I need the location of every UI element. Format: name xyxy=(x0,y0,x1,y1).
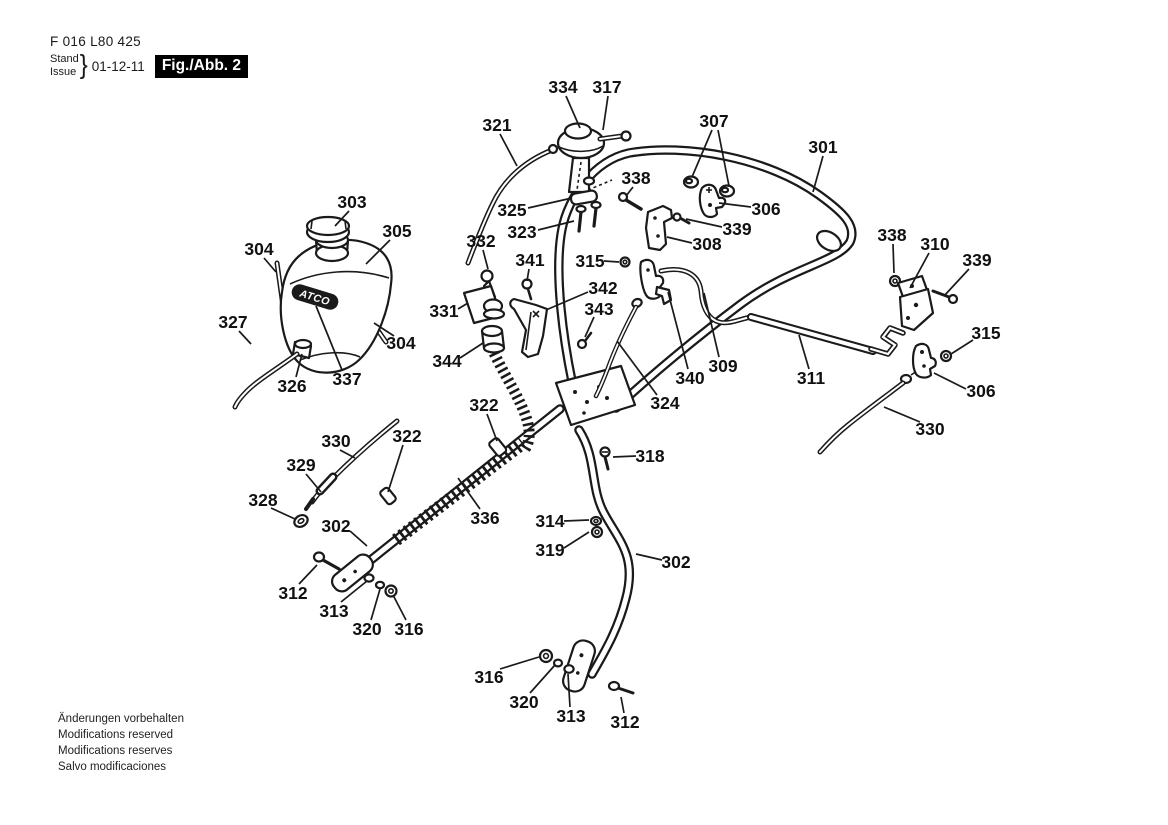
callout-307-3: 307 xyxy=(699,111,728,131)
callout-331-22: 331 xyxy=(429,301,458,321)
callout-319-44: 319 xyxy=(535,540,564,560)
parts-diagram: ATCO xyxy=(0,0,1168,825)
footer-line-fr: Modifications reserves xyxy=(58,744,184,760)
callout-315-15: 315 xyxy=(575,251,604,271)
callout-337-27: 337 xyxy=(332,369,361,389)
callout-312-46: 312 xyxy=(278,583,307,603)
callout-322-34: 322 xyxy=(469,395,498,415)
leader-line-312 xyxy=(621,697,624,713)
callout-330-36: 330 xyxy=(321,431,350,451)
callout-314-43: 314 xyxy=(535,511,564,531)
leader-line-344 xyxy=(460,343,483,358)
leader-line-331 xyxy=(458,303,468,309)
leader-line-315 xyxy=(604,261,619,262)
callout-311-31: 311 xyxy=(797,368,825,388)
callout-306-10: 306 xyxy=(751,199,780,219)
callout-313-52: 313 xyxy=(556,706,585,726)
callout-339-11: 339 xyxy=(722,219,751,239)
callout-328-40: 328 xyxy=(248,490,277,510)
screw-343 xyxy=(578,333,591,348)
callout-339-19: 339 xyxy=(962,250,991,270)
bell-lever-317 xyxy=(600,132,631,141)
leader-line-332 xyxy=(483,250,488,269)
footer-line-es: Salvo modificaciones xyxy=(58,760,184,776)
bolts-323 xyxy=(577,202,601,231)
callout-304-20: 304 xyxy=(244,239,273,259)
leader-line-330 xyxy=(340,450,355,458)
callout-338-5: 338 xyxy=(621,168,650,188)
callout-325-6: 325 xyxy=(497,200,526,220)
leader-line-302 xyxy=(636,554,662,560)
callout-330-35: 330 xyxy=(915,419,944,439)
callout-302-45: 302 xyxy=(661,552,690,572)
leader-line-329 xyxy=(306,474,321,492)
screw-338-left xyxy=(619,193,641,209)
callout-302-42: 302 xyxy=(321,516,350,536)
callout-340-29: 340 xyxy=(675,368,704,388)
sleeve-344 xyxy=(482,326,504,353)
callout-323-7: 323 xyxy=(507,222,536,242)
leader-line-317 xyxy=(603,96,608,130)
cable-clip-328 xyxy=(292,513,310,530)
callout-320-48: 320 xyxy=(352,619,381,639)
screw-312-bottom xyxy=(609,682,633,693)
callout-341-14: 341 xyxy=(515,250,544,270)
screw-318 xyxy=(601,448,610,470)
callout-326-26: 326 xyxy=(277,376,306,396)
leader-line-338 xyxy=(626,187,633,196)
callout-317-1: 317 xyxy=(592,77,621,97)
cable-330-right xyxy=(820,371,917,452)
washer-313-left xyxy=(365,574,374,581)
leader-line-311 xyxy=(799,335,809,369)
callout-322-37: 322 xyxy=(392,426,421,446)
control-rod-311 xyxy=(751,317,903,354)
nut-315-right xyxy=(941,351,951,361)
leader-line-318 xyxy=(613,456,636,457)
leader-line-301 xyxy=(813,156,823,192)
callout-301-4: 301 xyxy=(808,137,837,157)
footer-line-en: Modifications reserved xyxy=(58,728,184,744)
callout-316-50: 316 xyxy=(474,667,503,687)
callout-313-47: 313 xyxy=(319,601,348,621)
screw-339-left xyxy=(674,214,690,224)
callout-332-13: 332 xyxy=(466,231,495,251)
leader-line-315 xyxy=(951,340,973,354)
callout-316-49: 316 xyxy=(394,619,423,639)
leader-line-308 xyxy=(667,237,692,243)
callout-342-16: 342 xyxy=(588,278,617,298)
nut-319 xyxy=(592,527,602,537)
callout-344-24: 344 xyxy=(432,351,461,371)
leader-line-323 xyxy=(538,221,574,230)
leader-line-316 xyxy=(500,657,539,669)
callout-303-8: 303 xyxy=(337,192,366,212)
leader-line-338 xyxy=(893,244,894,273)
callout-324-33: 324 xyxy=(650,393,679,413)
leader-line-320 xyxy=(530,665,555,693)
right-bracket-cluster xyxy=(890,276,957,378)
bracket-342 xyxy=(510,299,547,357)
callout-304-25: 304 xyxy=(386,333,415,353)
leader-line-321 xyxy=(500,134,517,166)
leader-line-342 xyxy=(546,292,588,310)
callout-320-51: 320 xyxy=(509,692,538,712)
leader-line-339 xyxy=(944,269,969,296)
leader-line-327 xyxy=(239,331,251,344)
callout-309-30: 309 xyxy=(708,356,737,376)
callout-312-53: 312 xyxy=(610,712,639,732)
leader-line-316 xyxy=(393,595,406,620)
bracket-310 xyxy=(898,276,933,330)
callout-329-38: 329 xyxy=(286,455,315,475)
washer-314 xyxy=(591,517,601,525)
callout-343-23: 343 xyxy=(584,299,613,319)
callout-305-9: 305 xyxy=(382,221,411,241)
leader-line-319 xyxy=(564,532,589,548)
leader-line-322 xyxy=(388,445,403,492)
callout-318-39: 318 xyxy=(635,446,664,466)
callout-334-0: 334 xyxy=(548,77,577,97)
footer-line-de: Änderungen vorbehalten xyxy=(58,712,184,728)
parts-catalog-page: F 016 L80 425 Stand Issue } 01-12-11 Fig… xyxy=(0,0,1168,825)
bracket-308 xyxy=(646,206,672,250)
callout-327-21: 327 xyxy=(218,312,247,332)
callout-308-12: 308 xyxy=(692,234,721,254)
bracket-306-right xyxy=(913,344,936,378)
washer-313-bottom xyxy=(564,665,573,673)
leader-line-322 xyxy=(487,414,497,441)
conduit-spiral-336-upper xyxy=(482,326,529,449)
nut-315-left xyxy=(621,258,630,267)
callout-321-2: 321 xyxy=(482,115,511,135)
leader-line-306 xyxy=(934,373,966,389)
screw-312-left xyxy=(314,553,339,570)
leader-line-304 xyxy=(264,258,276,272)
grommet-cup xyxy=(484,300,504,319)
leader-line-320 xyxy=(371,589,380,620)
callout-306-32: 306 xyxy=(966,381,995,401)
lower-right-handle-tube-302 xyxy=(561,430,630,694)
leader-line-314 xyxy=(564,520,589,521)
washer-320-left xyxy=(376,582,384,588)
callout-310-18: 310 xyxy=(920,234,949,254)
leader-line-302 xyxy=(350,531,367,546)
page-footer: Änderungen vorbehalten Modifications res… xyxy=(58,712,184,775)
callout-338-17: 338 xyxy=(877,225,906,245)
callout-315-28: 315 xyxy=(971,323,1000,343)
left-tube-end xyxy=(329,551,377,595)
nut-316-left xyxy=(386,586,397,597)
screw-341 xyxy=(523,280,532,300)
leader-line-312 xyxy=(299,565,317,584)
fuel-cap-303 xyxy=(307,217,349,242)
nut-316-bottom xyxy=(540,650,552,662)
bracket-340 xyxy=(640,260,671,304)
callout-336-41: 336 xyxy=(470,508,499,528)
leader-line-339 xyxy=(686,219,722,227)
screw-339-right xyxy=(933,291,957,303)
